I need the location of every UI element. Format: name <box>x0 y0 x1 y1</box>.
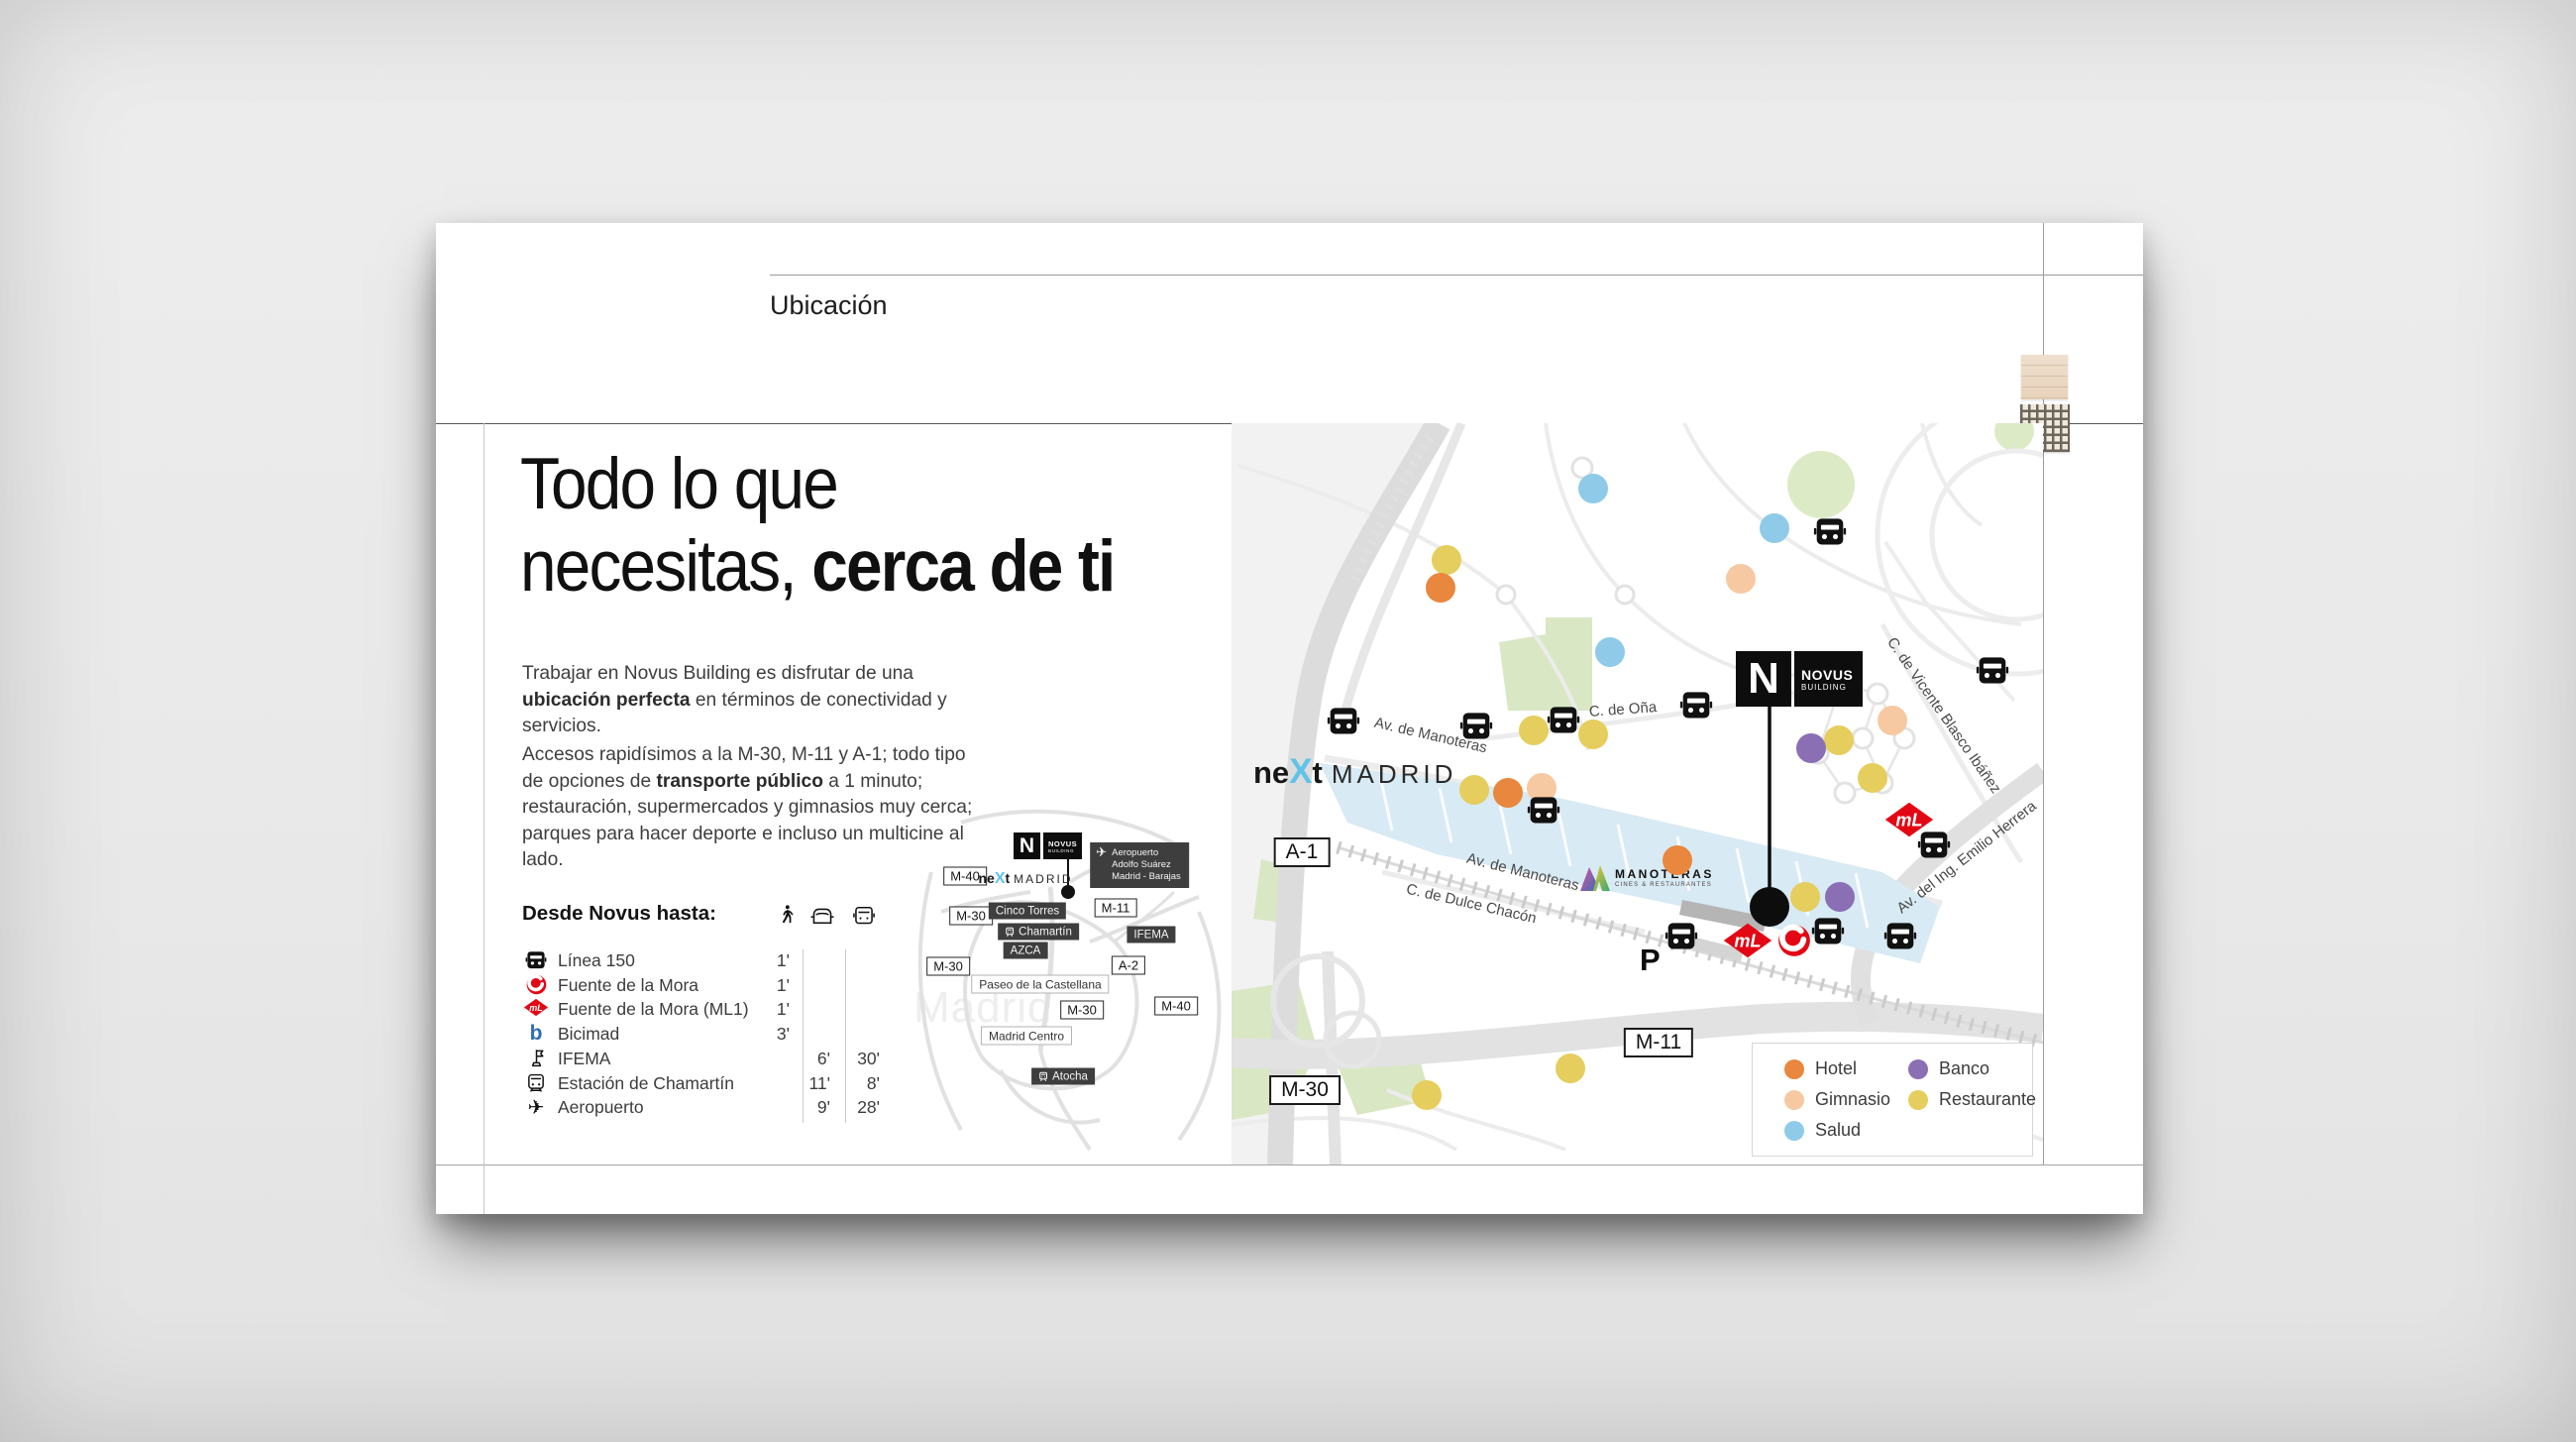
header-rule <box>770 275 2143 276</box>
title-line1: Todo lo que <box>520 444 837 524</box>
legend-dot-restaurante <box>1908 1090 1928 1110</box>
bus-stop-icon <box>1883 920 1917 953</box>
bus-stop-icon <box>1811 915 1845 948</box>
time-walk: 1' <box>745 950 790 971</box>
minimap-badge-chamart-n: Chamartín <box>998 924 1079 941</box>
badge-label: AZCA <box>1011 944 1041 956</box>
bus-stop-icon <box>1527 794 1560 828</box>
material-swatch-stone <box>2021 355 2068 399</box>
poi-gimnasio <box>1726 564 1756 594</box>
badge-label: M-30 <box>1067 1003 1097 1018</box>
poi-restaurante <box>1578 720 1608 749</box>
poi-restaurante <box>1556 1054 1585 1083</box>
badge-label: M-40 <box>1161 999 1191 1014</box>
poi-restaurante <box>1412 1080 1442 1110</box>
novus-n-logo: N <box>1736 651 1791 707</box>
time-bus: 30' <box>834 1049 880 1069</box>
transit-row: IFEMA6'30' <box>522 1048 889 1071</box>
bus-stop-icon <box>1459 710 1493 743</box>
road-badge-m-30: M-30 <box>1269 1075 1341 1105</box>
title-line2-regular: necesitas, <box>520 526 811 607</box>
legend-item-restaurante: Restaurante <box>1908 1089 2036 1110</box>
poi-salud <box>1760 513 1789 543</box>
bus-stop-icon <box>1547 704 1580 737</box>
table-separator-2 <box>845 949 846 1123</box>
plane-icon: ✈ <box>523 1096 549 1118</box>
poi-restaurante <box>1432 545 1461 575</box>
next-t: t <box>1313 755 1323 791</box>
poi-salud <box>1595 637 1625 667</box>
legend-label-salud: Salud <box>1815 1120 1861 1141</box>
p2-bold: transporte público <box>656 771 822 792</box>
transit-row: Línea 1501' <box>522 949 889 973</box>
next-city: MADRID <box>1332 759 1457 790</box>
time-walk: 3' <box>745 1024 790 1045</box>
bus-stop-icon <box>1327 705 1360 738</box>
bus-stop-icon <box>1976 654 2009 688</box>
legend-dot-salud <box>1784 1121 1804 1141</box>
next-t: t <box>1006 870 1011 886</box>
minimap-badge-m-30: M-30 <box>1060 1001 1104 1020</box>
poi-hotel <box>1426 573 1455 603</box>
map-novus-badge: N NOVUS BUILDING <box>1736 651 1863 707</box>
next-ne: ne <box>978 870 994 886</box>
transit-row: Fuente de la Mora (ML1)1' <box>522 998 889 1022</box>
car-icon <box>810 906 834 931</box>
paragraph-1: Trabajar en Novus Building es disfrutar … <box>522 661 980 740</box>
minimap-badge-cinco-torres: Cinco Torres <box>989 903 1066 920</box>
transit-destination: Fuente de la Mora (ML1) <box>558 999 749 1020</box>
minimap-badge-azca: AZCA <box>1004 943 1048 959</box>
novus-label: NOVUS BUILDING <box>1794 651 1863 707</box>
poi-hotel <box>1663 845 1692 875</box>
badge-label: Madrid Centro <box>989 1029 1064 1043</box>
airport-line3: Madrid - Barajas <box>1112 871 1181 882</box>
badge-label: M-11 <box>1102 901 1130 916</box>
novus-pin-dot <box>1750 887 1789 927</box>
poi-restaurante <box>1790 882 1820 912</box>
transit-destination: Línea 150 <box>558 950 635 971</box>
legend-item-gimnasio: Gimnasio <box>1784 1089 1890 1110</box>
minimap-badge-m-30: M-30 <box>949 907 993 926</box>
madrid-overview-minimap: Madrid M-40M-30Cinco TorresChamartínAZCA… <box>902 793 1229 1162</box>
bus-icon <box>523 949 549 971</box>
metro-ligero-icon <box>1722 922 1773 959</box>
title-line2-bold: cerca de ti <box>811 526 1114 607</box>
time-walk: 1' <box>745 975 790 996</box>
minimap-badge-paseo-de-la-castellana: Paseo de la Castellana <box>971 975 1109 994</box>
legend-label-hotel: Hotel <box>1815 1058 1857 1079</box>
next-ne: ne <box>1253 755 1289 791</box>
time-car: 9' <box>793 1097 830 1118</box>
novus-name: NOVUS <box>1801 667 1863 683</box>
main-title: Todo lo que necesitas, cerca de ti <box>520 443 1115 608</box>
minimap-badge-m-40: M-40 <box>1154 997 1198 1016</box>
badge-label: M-30 <box>956 909 986 924</box>
next-madrid-logo: neXtMADRID <box>1253 752 1456 792</box>
legend-item-banco: Banco <box>1908 1058 1989 1079</box>
table-separator-1 <box>803 949 804 1123</box>
bus-column-icon <box>853 905 875 932</box>
novus-name: NOVUS <box>1048 839 1082 848</box>
airport-line2: Adolfo Suárez <box>1112 859 1171 870</box>
time-walk: 1' <box>745 999 790 1020</box>
novus-sub: BUILDING <box>1801 683 1863 692</box>
transit-destination: IFEMA <box>558 1049 610 1069</box>
minimap-badge-a-2: A-2 <box>1112 956 1145 975</box>
poi-restaurante <box>1858 763 1887 793</box>
poi-gimnasio <box>1878 706 1907 735</box>
minimap-badge-atocha: Atocha <box>1031 1068 1095 1085</box>
bottom-divider <box>436 1165 2143 1165</box>
metro-ligero-icon <box>1883 801 1935 838</box>
transit-row: Estación de Chamartín11'8' <box>522 1072 889 1096</box>
parking-label: P <box>1640 943 1661 978</box>
p1-bold: ubicación perfecta <box>522 690 691 711</box>
legend-label-restaurante: Restaurante <box>1939 1089 2036 1110</box>
walk-icon <box>777 903 797 931</box>
manoteras-sub: CINES & RESTAURANTES <box>1615 882 1714 888</box>
p1-pre: Trabajar en Novus Building es disfrutar … <box>522 663 913 684</box>
poi-restaurante <box>1824 725 1854 755</box>
cercanias-icon <box>1777 924 1811 957</box>
badge-label: Paseo de la Castellana <box>979 977 1101 991</box>
airport-line1: Aeropuerto <box>1112 847 1158 858</box>
badge-label: Atocha <box>1052 1070 1088 1082</box>
brochure-page: Ubicación Todo lo que necesitas, cerca d… <box>436 223 2143 1214</box>
transit-table-heading: Desde Novus hasta: <box>522 902 716 926</box>
badge-label: M-30 <box>933 959 963 974</box>
bus-stop-icon <box>1679 689 1713 722</box>
road-badge-m-11: M-11 <box>1624 1028 1693 1057</box>
legend-item-salud: Salud <box>1784 1120 1861 1141</box>
map-legend: HotelGimnasioSaludBancoRestaurante <box>1752 1043 2033 1157</box>
transit-row: Fuente de la Mora1' <box>522 974 889 998</box>
badge-label: Cinco Torres <box>996 905 1059 917</box>
poi-restaurante <box>1519 716 1549 745</box>
transit-destination: Fuente de la Mora <box>558 975 698 996</box>
novus-sub: BUILDING <box>1048 848 1082 853</box>
poi-banco <box>1796 733 1826 763</box>
minimap-badge-ifema: IFEMA <box>1127 927 1175 943</box>
next-x: X <box>995 870 1006 888</box>
poi-banco <box>1825 882 1855 912</box>
legend-item-hotel: Hotel <box>1784 1058 1857 1079</box>
poi-restaurante <box>1459 775 1489 805</box>
page-title: Ubicación <box>770 290 888 321</box>
next-x: X <box>1289 752 1312 792</box>
ifema-icon <box>523 1048 549 1069</box>
minimap-badge-m-11: M-11 <box>1095 899 1137 918</box>
bus-stop-icon <box>1813 515 1847 549</box>
legend-dot-banco <box>1908 1059 1928 1079</box>
minimap-airport-badge: ✈ Aeropuerto Adolfo Suárez Madrid - Bara… <box>1090 842 1189 888</box>
time-bus: 28' <box>834 1097 880 1118</box>
manoteras-name: MANOTERAS <box>1615 868 1714 880</box>
district-map: neXtMADRID N NOVUS BUILDING <box>1232 423 2043 1165</box>
poi-hotel <box>1493 778 1523 808</box>
legend-label-gimnasio: Gimnasio <box>1815 1089 1890 1110</box>
metroligero-icon <box>523 998 549 1020</box>
train-icon <box>523 1072 549 1094</box>
legend-dot-gimnasio <box>1784 1090 1804 1110</box>
manoteras-cines-logo: MANOTERAS CINES & RESTAURANTES <box>1580 864 1714 891</box>
bicimad-icon: b <box>523 1023 549 1045</box>
next-madrid-logo-mini: neXtMADRID <box>978 870 1072 888</box>
legend-label-banco: Banco <box>1939 1058 1989 1079</box>
next-city: MADRID <box>1014 872 1072 886</box>
manoteras-m-icon <box>1580 864 1610 891</box>
poi-salud <box>1578 474 1608 503</box>
transit-destination: Bicimad <box>558 1024 619 1045</box>
legend-dot-hotel <box>1784 1059 1804 1079</box>
minimap-badge-m-30: M-30 <box>926 957 970 976</box>
cercanias-icon <box>523 974 549 996</box>
transit-row: bBicimad3' <box>522 1023 889 1047</box>
badge-label: M-40 <box>950 869 980 884</box>
left-margin-rule <box>483 423 484 1214</box>
plane-icon: ✈ <box>1096 847 1107 859</box>
transit-destination: Aeropuerto <box>558 1097 644 1118</box>
road-badge-a-1: A-1 <box>1274 837 1331 867</box>
minimap-novus-badge: N NOVUS BUILDING <box>1014 832 1082 859</box>
airport-lines: Aeropuerto Adolfo Suárez Madrid - Baraja… <box>1112 847 1181 883</box>
novus-n-logo: N <box>1014 832 1040 859</box>
time-car: 6' <box>793 1049 830 1069</box>
badge-label: IFEMA <box>1133 929 1168 941</box>
time-car: 11' <box>793 1073 830 1094</box>
badge-label: Chamartín <box>1019 926 1072 938</box>
minimap-badge-madrid-centro: Madrid Centro <box>981 1027 1072 1046</box>
time-bus: 8' <box>834 1073 880 1094</box>
transit-row: ✈Aeropuerto9'28' <box>522 1096 889 1120</box>
transit-destination: Estación de Chamartín <box>558 1073 734 1094</box>
novus-label: NOVUS BUILDING <box>1043 832 1082 859</box>
badge-label: A-2 <box>1119 958 1138 973</box>
bus-stop-icon <box>1664 920 1698 953</box>
